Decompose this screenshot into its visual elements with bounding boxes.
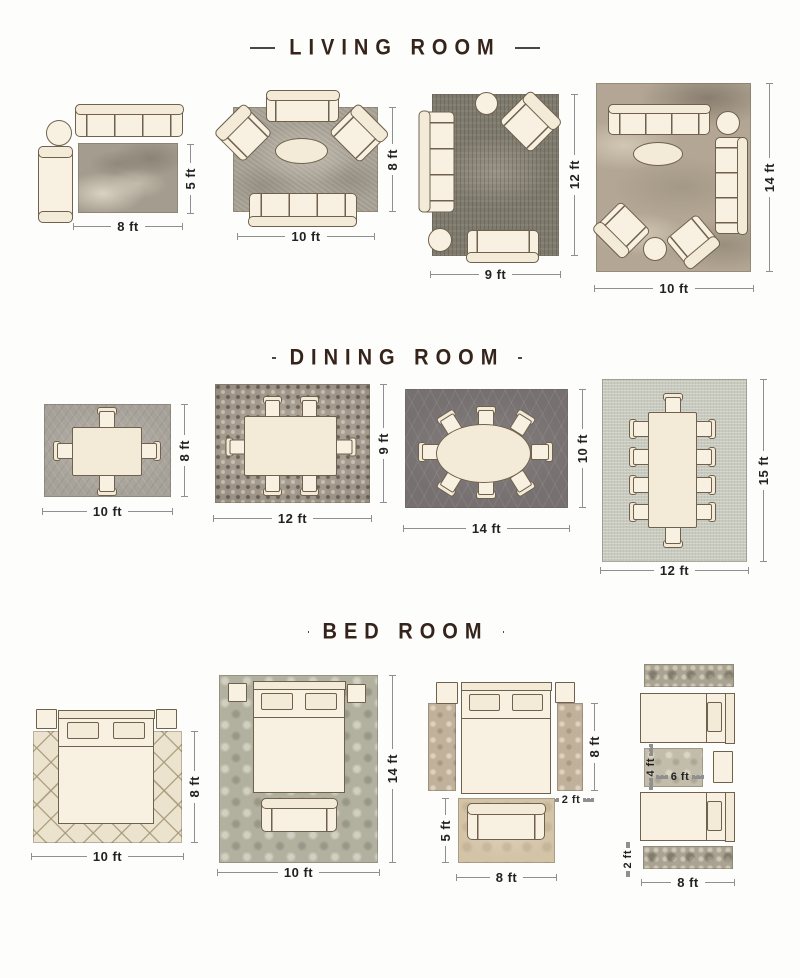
oval-dining-table-icon xyxy=(436,424,531,483)
header-dash-right xyxy=(515,47,540,49)
pouf-icon xyxy=(475,92,498,115)
loveseat-icon xyxy=(467,230,539,263)
dining-table-icon xyxy=(648,412,697,528)
living-rug-5x8 xyxy=(78,143,178,213)
dining-chair-icon xyxy=(531,442,553,462)
dimension-label: 8 ft xyxy=(385,144,400,176)
runner-width-dimension: 2 ft xyxy=(620,842,636,873)
height-dimension: 12 ft xyxy=(566,94,582,256)
pillow-icon xyxy=(67,722,100,739)
pouf-icon xyxy=(428,228,452,252)
dimension-label: 9 ft xyxy=(376,428,391,460)
pillow-icon xyxy=(707,702,722,733)
bedside-runner-rug xyxy=(557,703,583,791)
dining-room-header: DINING ROOM xyxy=(272,344,522,372)
dining-chair-icon xyxy=(97,474,117,496)
twin-runner-rug xyxy=(644,664,734,687)
sofa-icon xyxy=(715,137,748,234)
height-dimension: 14 ft xyxy=(384,675,400,863)
width-dimension: 14 ft xyxy=(403,520,570,536)
dining-chair-icon xyxy=(694,502,716,522)
height-dimension: 8 ft xyxy=(384,107,400,212)
runner-length-dimension: 8 ft xyxy=(641,874,735,890)
dimension-label: 10 ft xyxy=(653,281,694,296)
sofa-icon xyxy=(249,193,357,227)
width-dimension: 9 ft xyxy=(430,266,561,282)
nightstand-icon xyxy=(713,751,733,783)
height-dimension: 15 ft xyxy=(755,379,771,562)
runner-length-dimension: 8 ft xyxy=(586,703,602,791)
nightstand-icon xyxy=(436,682,458,704)
twin-bed-icon xyxy=(640,693,734,743)
pillow-icon xyxy=(469,694,500,711)
dimension-label: 10 ft xyxy=(278,865,319,880)
dining-chair-icon xyxy=(300,474,319,496)
width-dimension: 10 ft xyxy=(31,848,184,864)
living-room-title: LIVING ROOM xyxy=(289,35,500,61)
pillow-icon xyxy=(261,693,293,710)
width-dimension: 12 ft xyxy=(600,562,749,578)
bed-icon xyxy=(461,682,551,794)
dimension-label: 8 ft xyxy=(490,870,524,885)
rug-size-guide-poster: LIVING ROOM 8 ft 5 ft 10 ft xyxy=(0,0,800,978)
pouf-icon xyxy=(46,120,72,146)
dimension-label: 10 ft xyxy=(87,849,128,864)
loveseat-icon xyxy=(266,90,339,122)
header-dash-right xyxy=(518,357,522,359)
chaise-icon xyxy=(38,146,73,223)
bed-icon xyxy=(58,710,154,824)
height-dimension: 14 ft xyxy=(761,83,777,272)
dimension-label: 8 ft xyxy=(111,219,145,234)
dining-chair-icon xyxy=(694,475,716,495)
header-dash-left xyxy=(308,631,309,633)
dimension-label: 12 ft xyxy=(567,155,582,194)
dining-chair-icon xyxy=(300,396,319,418)
dining-chair-icon xyxy=(694,447,716,467)
dining-table-icon xyxy=(244,416,337,476)
dining-chair-icon xyxy=(263,396,282,418)
coffee-table-icon xyxy=(633,142,683,166)
dimension-label: 2 ft xyxy=(622,848,634,871)
dimension-label: 10 ft xyxy=(285,229,326,244)
header-dash-right xyxy=(503,631,504,633)
twin-bed-icon xyxy=(640,792,734,841)
foot-rug-height-dimension: 5 ft xyxy=(437,798,453,863)
pillow-icon xyxy=(113,722,146,739)
dining-table-icon xyxy=(72,427,142,476)
dimension-label: 8 ft xyxy=(587,731,602,763)
pillow-icon xyxy=(305,693,337,710)
pouf-icon xyxy=(716,111,740,135)
nightstand-icon xyxy=(228,683,247,702)
dimension-label: 8 ft xyxy=(187,771,202,803)
height-dimension: 5 ft xyxy=(182,144,198,214)
dining-chair-icon xyxy=(694,419,716,439)
height-dimension: 8 ft xyxy=(186,731,202,843)
dimension-label: 10 ft xyxy=(575,429,590,468)
width-dimension: 8 ft xyxy=(73,218,183,234)
dining-chair-icon xyxy=(335,438,357,457)
height-dimension: 10 ft xyxy=(574,389,590,508)
bed-room-title: BED ROOM xyxy=(323,619,489,645)
nightstand-icon xyxy=(555,682,575,703)
dining-chair-icon xyxy=(263,474,282,496)
header-dash-left xyxy=(272,357,276,359)
dimension-label: 9 ft xyxy=(479,267,513,282)
dimension-label: 6 ft xyxy=(668,771,693,783)
living-room-header: LIVING ROOM xyxy=(250,34,540,62)
width-dimension: 10 ft xyxy=(42,503,173,519)
pillow-icon xyxy=(512,694,543,711)
dimension-label: 15 ft xyxy=(756,451,771,490)
dimension-label: 12 ft xyxy=(272,511,313,526)
dimension-label: 8 ft xyxy=(177,435,192,467)
nightstand-icon xyxy=(156,709,177,729)
sofa-icon xyxy=(608,104,710,135)
bench-icon xyxy=(467,803,545,840)
dining-chair-icon xyxy=(97,407,117,429)
width-dimension: 10 ft xyxy=(237,228,375,244)
dimension-label: 2 ft xyxy=(559,794,584,806)
dimension-label: 12 ft xyxy=(654,563,695,578)
dimension-label: 14 ft xyxy=(762,158,777,197)
dimension-label: 10 ft xyxy=(87,504,128,519)
between-rug-width-dimension: 6 ft xyxy=(656,769,704,785)
bed-icon xyxy=(253,681,345,793)
dining-room-title: DINING ROOM xyxy=(290,345,505,371)
dimension-label: 5 ft xyxy=(183,163,198,195)
header-dash-left xyxy=(250,47,275,49)
bedside-runner-rug xyxy=(428,703,456,791)
bench-icon xyxy=(261,798,337,832)
nightstand-icon xyxy=(36,709,57,729)
dimension-label: 14 ft xyxy=(466,521,507,536)
dimension-label: 5 ft xyxy=(438,815,453,847)
width-dimension: 10 ft xyxy=(217,864,380,880)
pouf-icon xyxy=(643,237,667,261)
dimension-label: 14 ft xyxy=(385,749,400,788)
height-dimension: 9 ft xyxy=(375,384,391,503)
width-dimension: 10 ft xyxy=(594,280,754,296)
width-dimension: 12 ft xyxy=(213,510,372,526)
twin-runner-rug xyxy=(643,846,733,869)
sofa-icon xyxy=(419,112,455,213)
dimension-label: 8 ft xyxy=(671,875,705,890)
coffee-table-icon xyxy=(275,138,328,164)
height-dimension: 8 ft xyxy=(176,404,192,497)
foot-rug-width-dimension: 8 ft xyxy=(456,869,557,885)
dining-chair-icon xyxy=(663,526,683,548)
dining-chair-icon xyxy=(139,441,161,461)
pillow-icon xyxy=(707,801,722,831)
nightstand-icon xyxy=(347,684,366,703)
sofa-icon xyxy=(75,104,183,137)
bed-room-header: BED ROOM xyxy=(308,618,503,646)
